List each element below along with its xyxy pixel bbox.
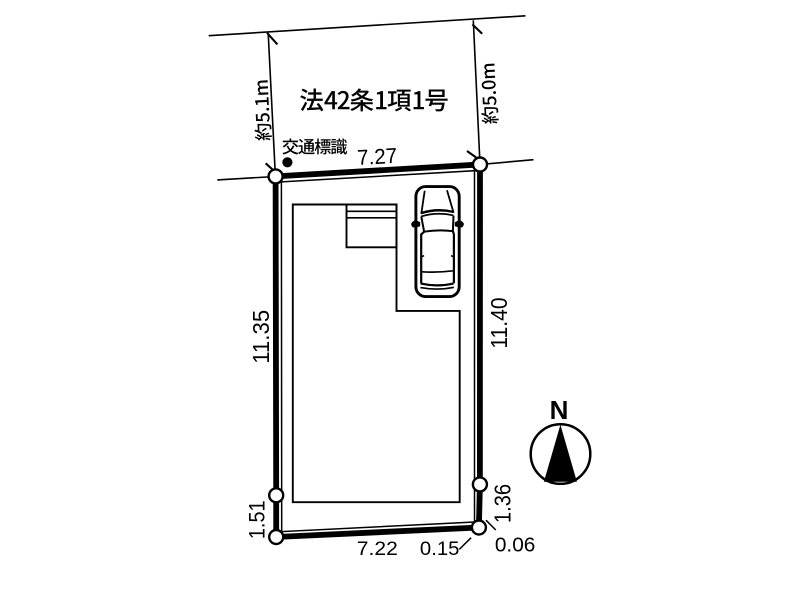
- svg-text:11.35: 11.35: [248, 310, 274, 364]
- svg-text:7.27: 7.27: [357, 144, 398, 170]
- svg-text:0.06: 0.06: [495, 534, 536, 556]
- svg-text:N: N: [550, 395, 569, 425]
- svg-text:0.15: 0.15: [420, 538, 460, 560]
- svg-text:1.51: 1.51: [244, 501, 269, 540]
- svg-text:1.36: 1.36: [489, 484, 515, 523]
- svg-text:11.40: 11.40: [486, 297, 512, 348]
- svg-text:7.22: 7.22: [357, 538, 398, 560]
